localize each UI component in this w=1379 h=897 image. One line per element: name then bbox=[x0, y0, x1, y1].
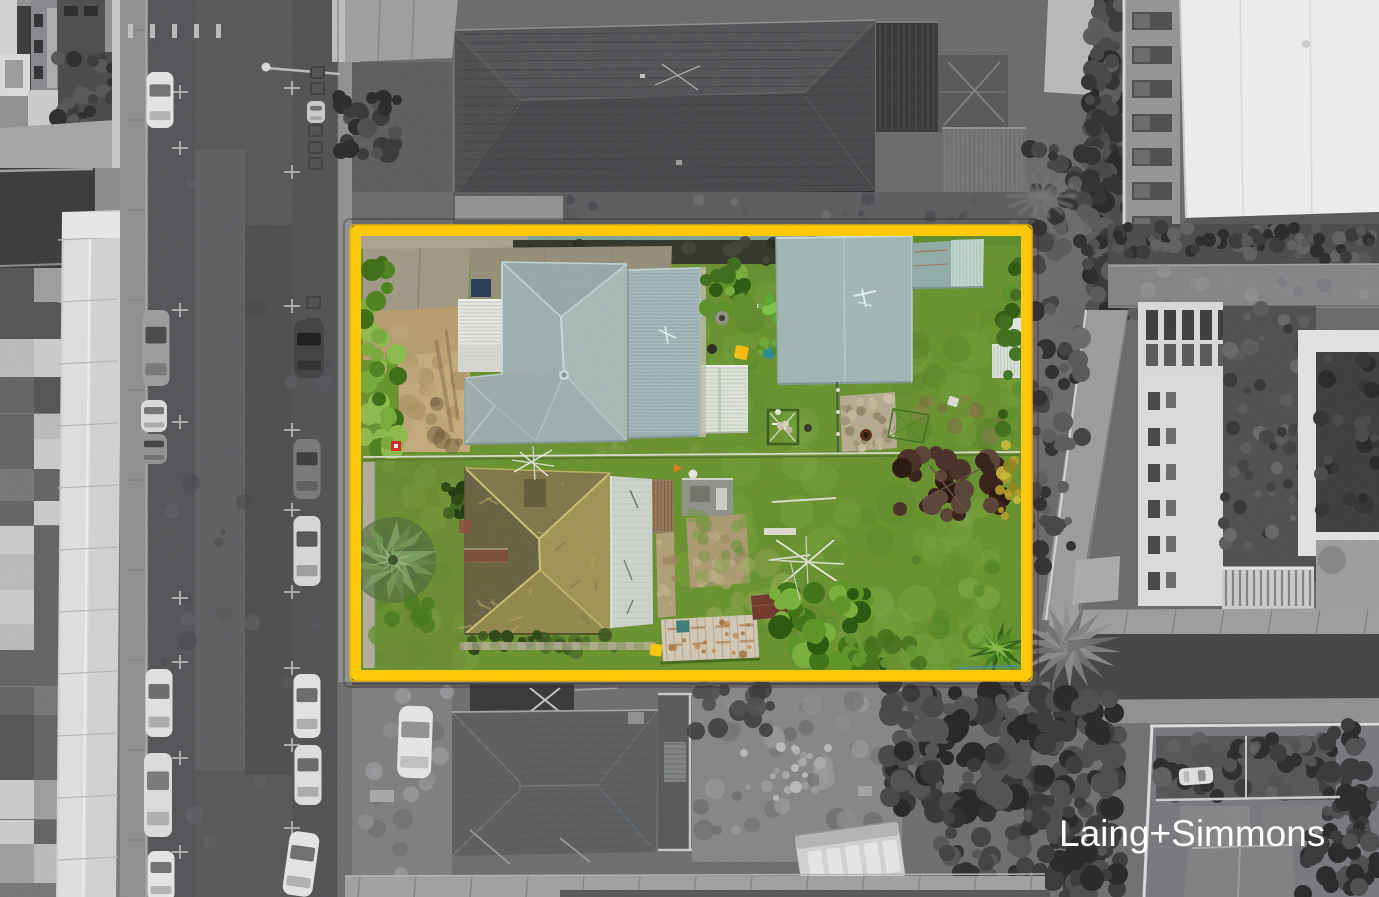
svg-text:Laing+Simmons: Laing+Simmons bbox=[1059, 813, 1325, 854]
